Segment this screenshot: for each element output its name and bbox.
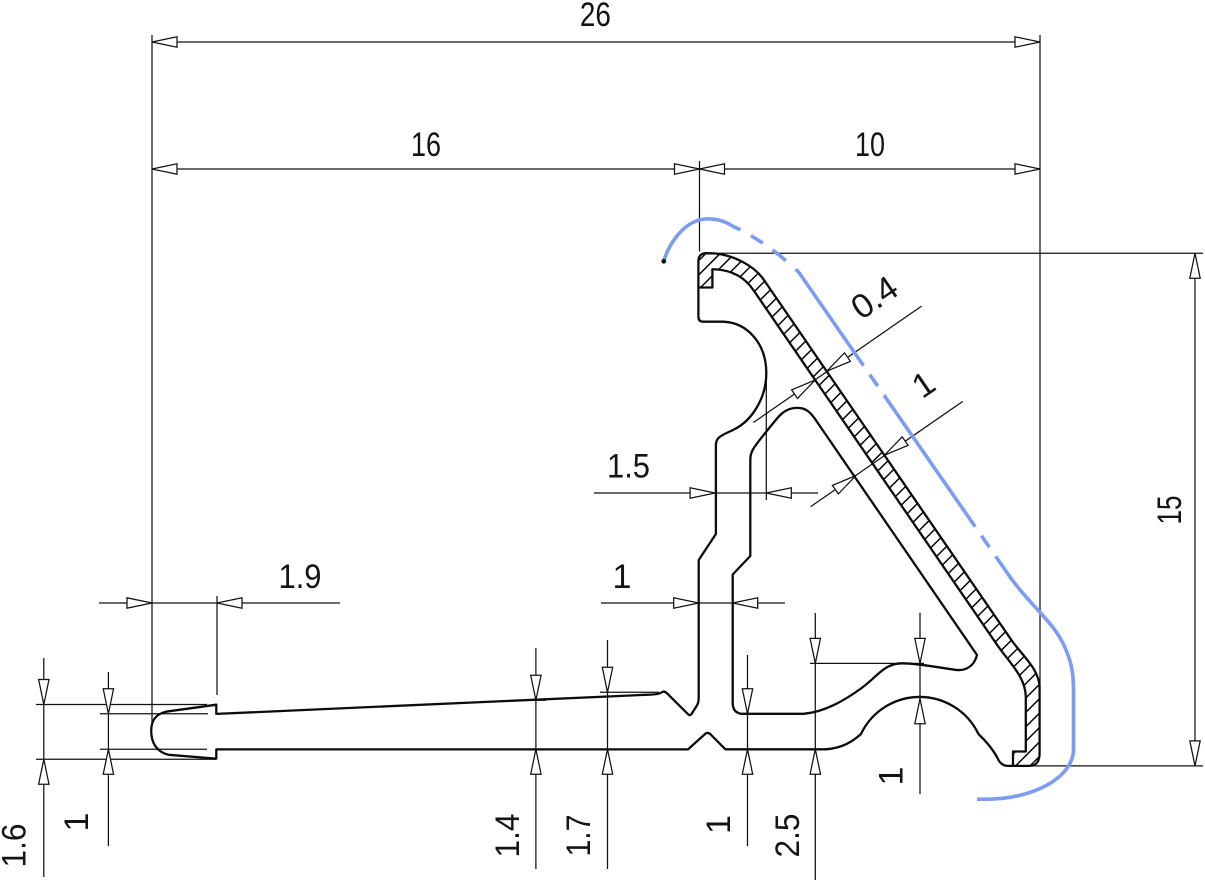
svg-text:10: 10 (855, 126, 885, 164)
svg-text:1: 1 (873, 767, 911, 786)
svg-text:16: 16 (411, 126, 441, 164)
svg-text:1: 1 (613, 558, 632, 596)
svg-text:1.6: 1.6 (0, 824, 34, 868)
svg-text:2.5: 2.5 (769, 814, 807, 858)
svg-text:1.4: 1.4 (489, 814, 527, 858)
svg-text:15: 15 (1151, 496, 1189, 525)
svg-text:1: 1 (58, 813, 96, 832)
svg-text:1.5: 1.5 (607, 448, 650, 486)
svg-text:1: 1 (700, 815, 738, 834)
svg-text:1.7: 1.7 (560, 815, 598, 857)
svg-text:26: 26 (580, 0, 611, 34)
svg-text:1.9: 1.9 (279, 558, 322, 596)
